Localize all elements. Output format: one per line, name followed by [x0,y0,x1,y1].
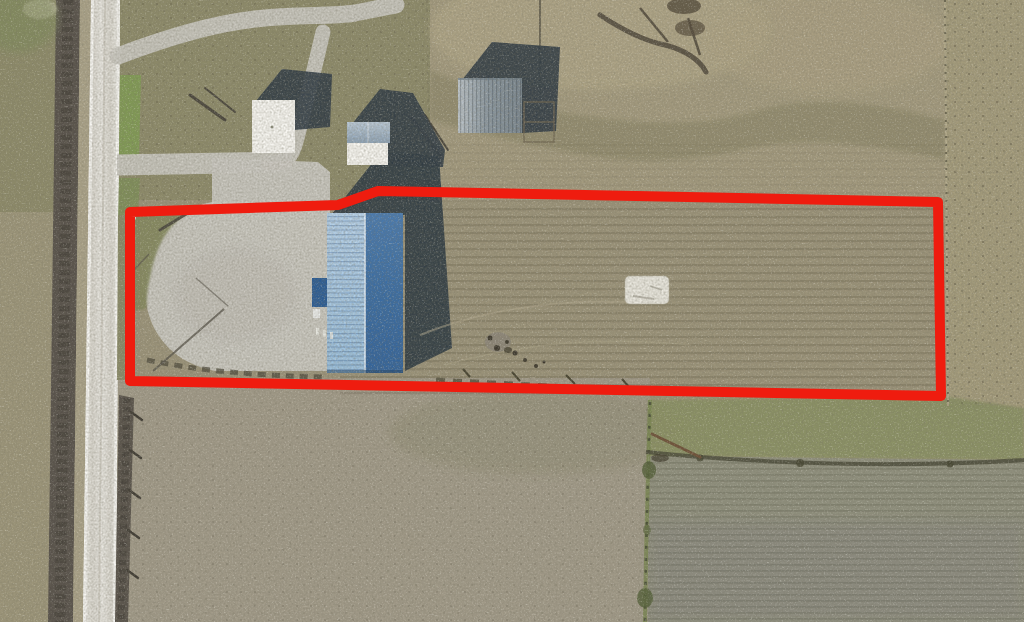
aerial-photo [0,0,1024,622]
photo-grain-light [0,0,1024,622]
photo-grain-rough-extra [945,0,1024,408]
